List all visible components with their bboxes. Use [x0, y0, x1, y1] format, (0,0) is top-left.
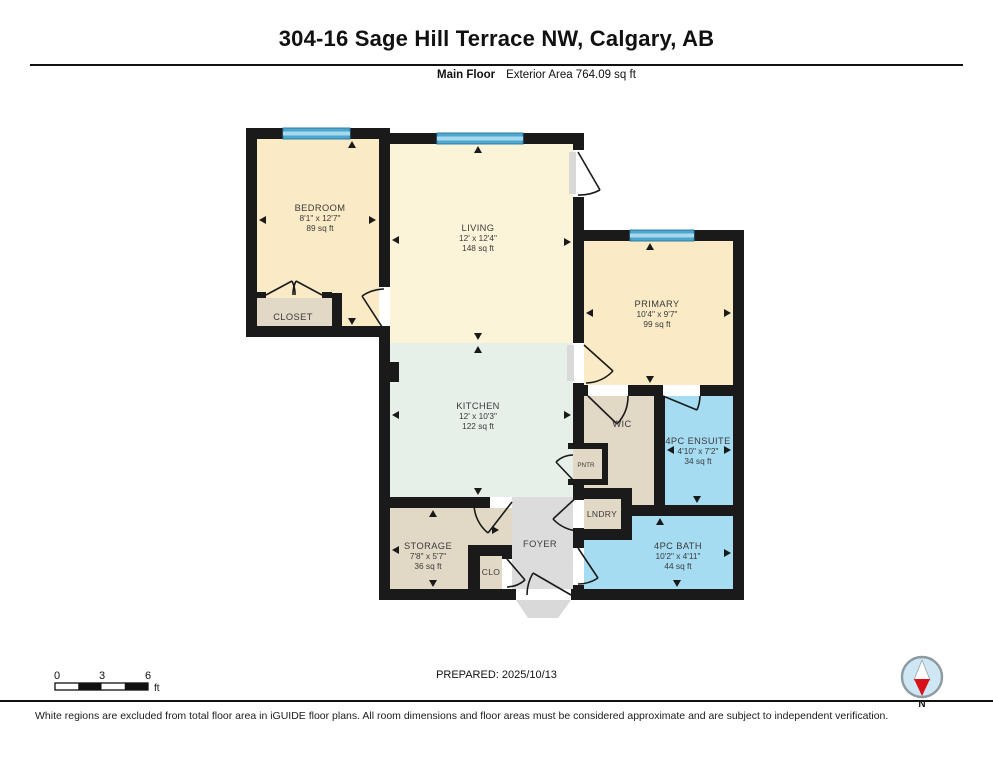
clo-label: CLO [482, 567, 500, 577]
bedroom-label: BEDROOM [295, 203, 346, 213]
storage-dims: 7'8" x 5'7" [410, 551, 446, 561]
primary-area: 99 sq ft [643, 319, 671, 329]
wic-label: WIC [612, 419, 631, 429]
primary-label: PRIMARY [635, 299, 680, 309]
laundry-label: LNDRY [587, 509, 617, 519]
storage-label: STORAGE [404, 541, 452, 551]
living-window [437, 133, 523, 144]
kitchen-area: 122 sq ft [462, 421, 495, 431]
door-jamb [567, 345, 574, 381]
bedroom-window [283, 128, 350, 139]
storage-area: 36 sq ft [414, 561, 442, 571]
living-dims: 12' x 12'4" [459, 233, 497, 243]
kitchen-label: KITCHEN [456, 401, 500, 411]
foyer-label: FOYER [523, 539, 557, 549]
entry-threshold [516, 600, 571, 618]
kitchen-dims: 12' x 10'3" [459, 411, 497, 421]
pantry-label: PNTR [577, 462, 595, 469]
scale-unit: ft [154, 683, 160, 694]
living-area: 148 sq ft [462, 243, 495, 253]
bedroom-area: 89 sq ft [306, 223, 334, 233]
prepared-date: PREPARED: 2025/10/13 [0, 669, 993, 681]
living-label: LIVING [462, 223, 495, 233]
compass-icon: N [902, 657, 942, 710]
footer-divider [0, 700, 993, 702]
primary-dims: 10'4" x 9'7" [637, 309, 678, 319]
ensuite-area: 34 sq ft [684, 456, 712, 466]
door-jamb [569, 152, 576, 194]
disclaimer-text: White regions are excluded from total fl… [35, 710, 975, 722]
bath-area: 44 sq ft [664, 561, 692, 571]
ensuite-label: 4PC ENSUITE [665, 436, 730, 446]
ensuite-dims: 4'10" x 7'2" [678, 446, 719, 456]
bath-label: 4PC BATH [654, 541, 702, 551]
bath-dims: 10'2" x 4'11" [656, 551, 701, 561]
primary-window [630, 230, 694, 241]
floor-plan-page: 304-16 Sage Hill Terrace NW, Calgary, AB… [0, 0, 993, 768]
bedroom-dims: 8'1" x 12'7" [300, 213, 341, 223]
floor-plan-drawing: BEDROOM 8'1" x 12'7" 89 sq ft LIVING 12'… [0, 0, 993, 768]
closet-label: CLOSET [273, 312, 313, 322]
